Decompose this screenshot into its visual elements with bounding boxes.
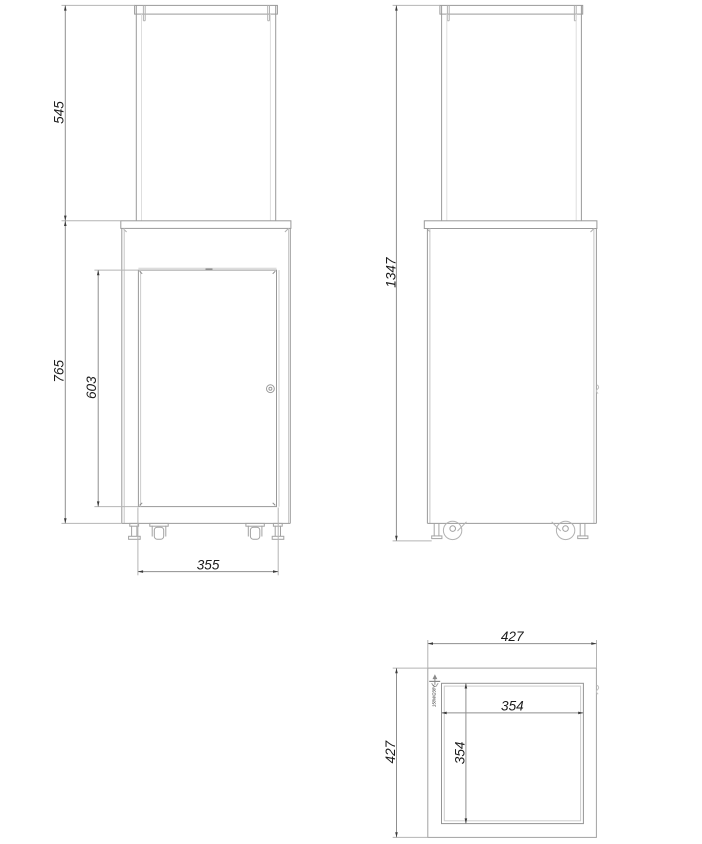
svg-text:765: 765	[51, 360, 66, 383]
svg-text:355: 355	[197, 557, 220, 572]
svg-text:427: 427	[501, 629, 524, 644]
svg-text:354: 354	[501, 699, 524, 714]
svg-text:545: 545	[51, 101, 66, 124]
svg-text:427: 427	[383, 740, 398, 763]
svg-text:354: 354	[453, 741, 468, 764]
svg-text:150W/230V: 150W/230V	[431, 684, 436, 707]
svg-text:603: 603	[84, 376, 99, 399]
svg-text:1347: 1347	[383, 257, 398, 288]
